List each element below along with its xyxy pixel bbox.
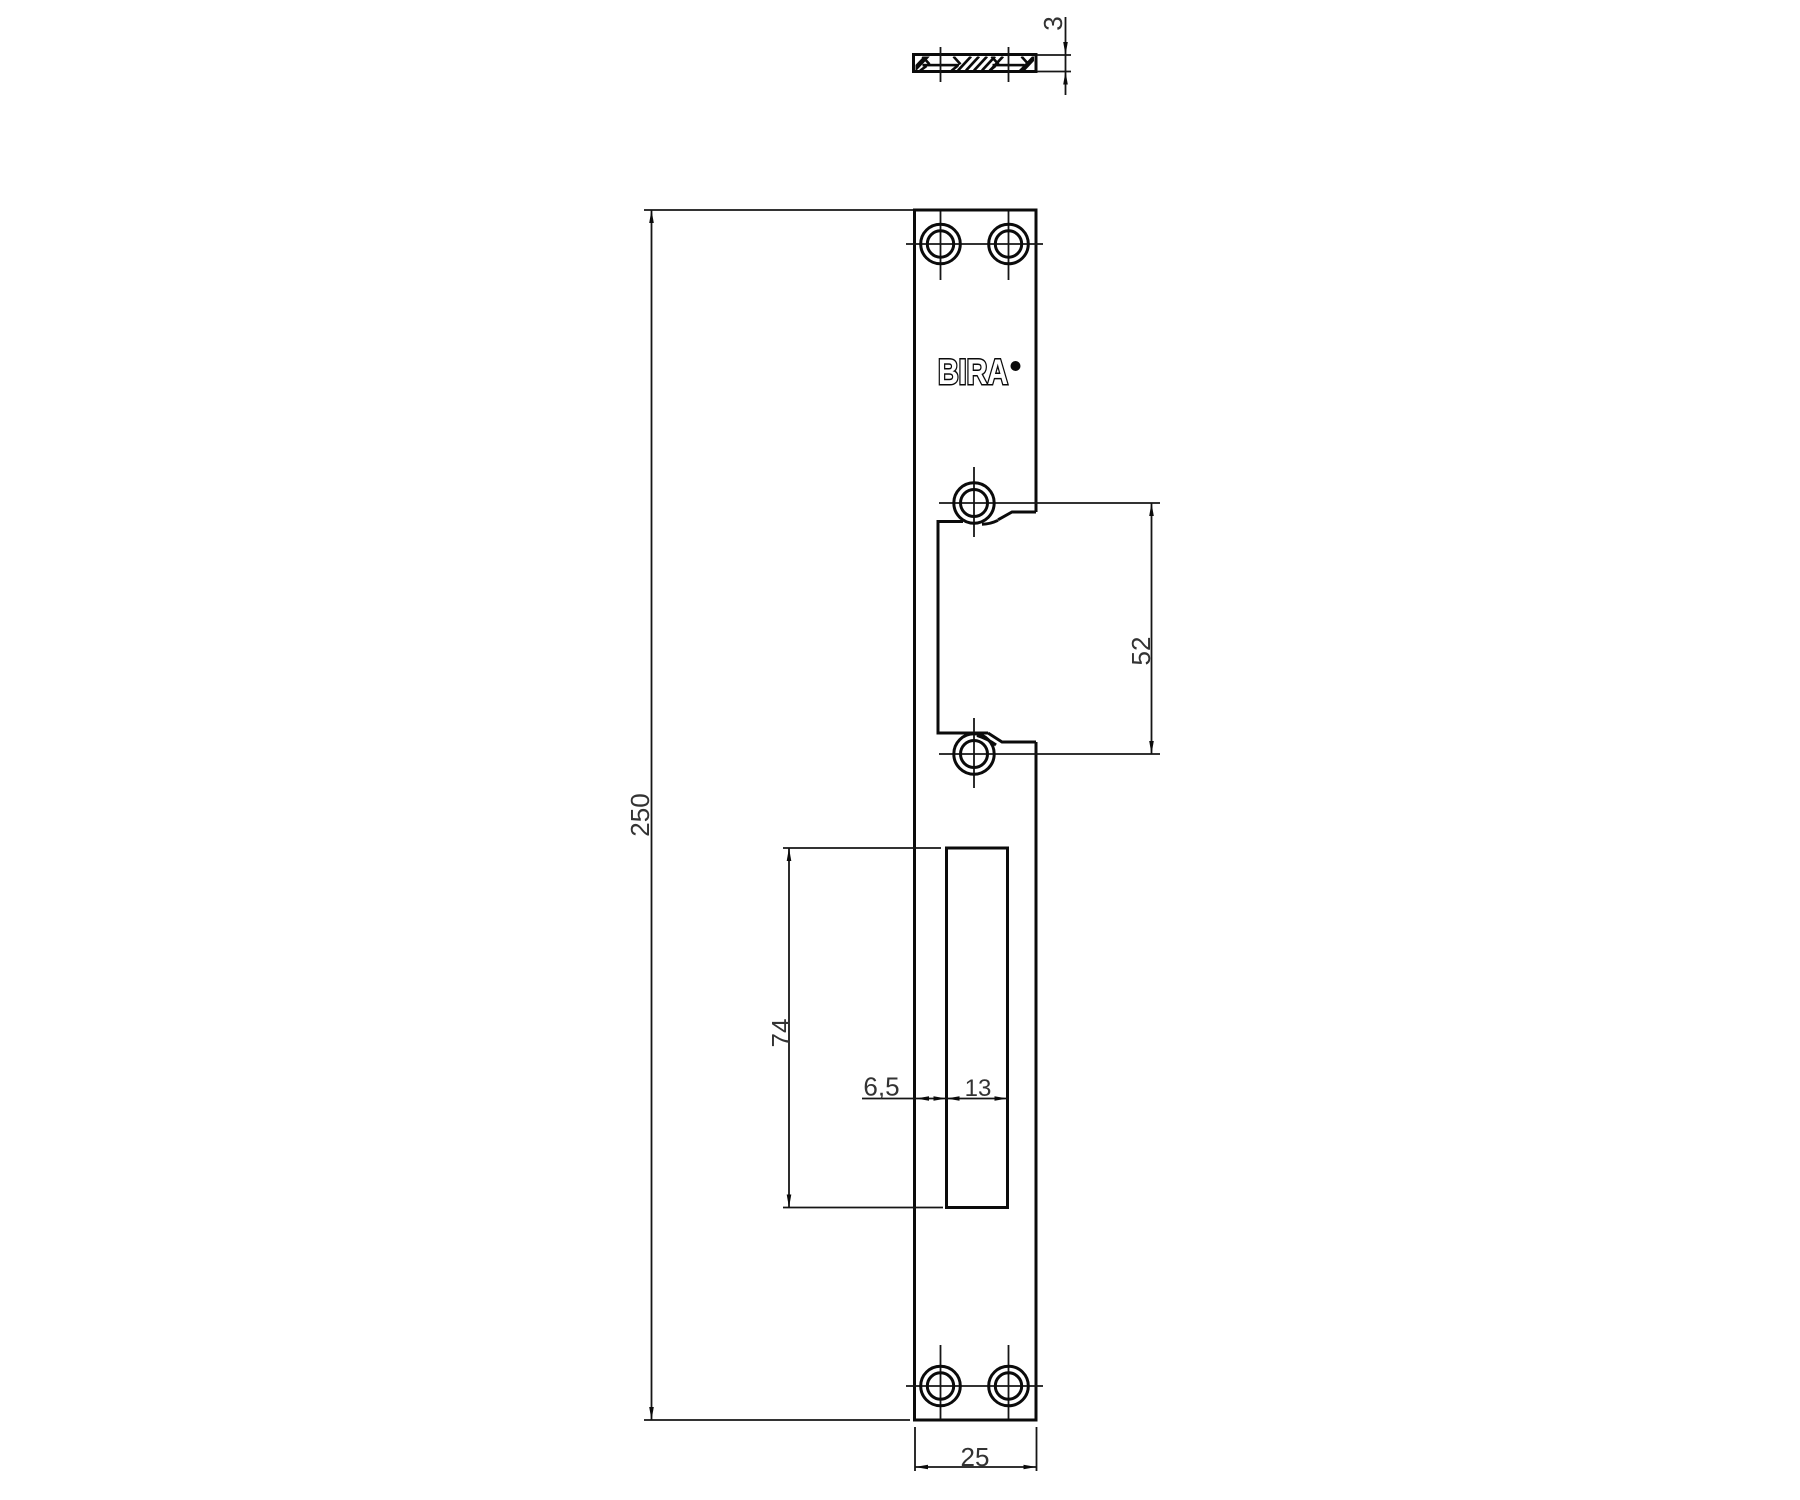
- svg-text:BIRA: BIRA: [938, 353, 1008, 392]
- svg-text:74: 74: [766, 1019, 796, 1048]
- svg-text:3: 3: [1038, 16, 1068, 30]
- svg-text:52: 52: [1126, 637, 1156, 666]
- svg-text:13: 13: [965, 1075, 992, 1102]
- svg-text:6,5: 6,5: [863, 1072, 899, 1102]
- svg-text:250: 250: [625, 793, 655, 836]
- svg-text:25: 25: [961, 1442, 990, 1472]
